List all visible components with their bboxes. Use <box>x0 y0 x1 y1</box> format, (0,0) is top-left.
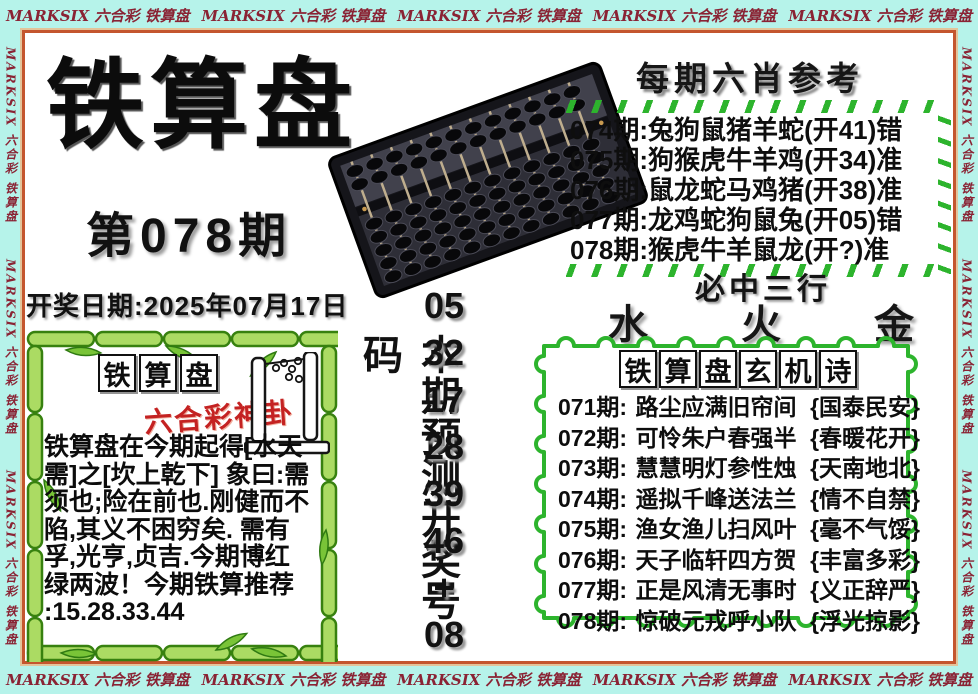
marquee-text: MARKSIX 六合彩 铁算盘 <box>202 5 386 26</box>
poem-row: 074期:遥拟千峰送法兰{情不自禁} <box>558 484 920 515</box>
marquee-strip-right: MARKSIX 六合彩 铁算盘 MARKSIX 六合彩 铁算盘 MARKSIX … <box>956 30 978 664</box>
title-char: 玄 <box>739 350 777 388</box>
row-result: (开41)错 <box>804 115 902 145</box>
poem-row: 077期:正是风清无事时{义正辞严} <box>558 575 920 606</box>
marquee-text: MARKSIX 六合彩 铁算盘 <box>959 470 976 647</box>
poem-issue: 071期: <box>558 392 622 423</box>
divination-line: :15.28.33.44 <box>44 599 324 627</box>
marquee-text: MARKSIX 六合彩 铁算盘 <box>3 47 20 224</box>
marquee-text: MARKSIX 六合彩 铁算盘 <box>6 669 190 690</box>
poem-row: 075期:渔女渔儿扫风叶{毫不气馁} <box>558 514 920 545</box>
marquee-text: MARKSIX 六合彩 铁算盘 <box>788 669 972 690</box>
row-result: (开?)准 <box>804 235 889 265</box>
prediction-numbers: 05 32 17 28 39 46 + 08 <box>406 282 482 658</box>
poem-row: 076期:天子临轩四方贺{丰富多彩} <box>558 545 920 576</box>
poem-issue: 078期: <box>558 606 622 637</box>
prediction-special-number: 08 <box>406 611 482 658</box>
poem-hint: {春暖花开} <box>810 423 920 454</box>
six-xiao-box: 074期:兔狗鼠猪羊蛇(开41)错 075期:狗猴虎牛羊鸡(开34)准 076期… <box>566 100 956 278</box>
row-animals: 龙鸡蛇狗鼠兔 <box>648 205 804 235</box>
poem-hint: {义正辞严} <box>810 575 920 606</box>
prediction-number: 28 <box>406 423 482 470</box>
poem-hint: {毫不气馁} <box>810 514 920 545</box>
poem-verse: 可怜朱户春强半 <box>636 423 797 454</box>
poem-issue: 074期: <box>558 484 622 515</box>
marquee-text: MARKSIX 六合彩 铁算盘 <box>959 259 976 436</box>
marquee-text: MARKSIX 六合彩 铁算盘 <box>593 669 777 690</box>
poem-row: 078期:惊破元戎呼小队{浮光掠影} <box>558 606 920 637</box>
poem-verse: 慧慧明灯参性烛 <box>636 453 797 484</box>
title-char: 盘 <box>180 354 218 392</box>
marquee-text: MARKSIX 六合彩 铁算盘 <box>202 669 386 690</box>
poem-issue: 075期: <box>558 514 622 545</box>
marquee-strip-left: MARKSIX 六合彩 铁算盘 MARKSIX 六合彩 铁算盘 MARKSIX … <box>0 30 22 664</box>
issue-number: 第078期 <box>86 196 292 266</box>
row-animals: 兔狗鼠猪羊蛇 <box>648 115 804 145</box>
row-result: (开05)错 <box>804 205 902 235</box>
bamboo-box: 铁 算 盘 六合彩神卦 铁算盘在今期起得[水天 需]之[坎上乾下] 象曰:需 须… <box>26 330 338 662</box>
marquee-text: MARKSIX 六合彩 铁算盘 <box>3 259 20 436</box>
divination-text: 铁算盘在今期起得[水天 需]之[坎上乾下] 象曰:需 须也;险在前也.刚健而不 … <box>44 434 324 627</box>
row-issue: 076期: <box>570 175 648 205</box>
bamboo-box-title: 铁 算 盘 <box>98 354 218 392</box>
marquee-text: MARKSIX 六合彩 铁算盘 <box>593 5 777 26</box>
six-xiao-row: 077期:龙鸡蛇狗鼠兔(开05)错 <box>570 205 938 235</box>
marquee-text: MARKSIX 六合彩 铁算盘 <box>959 47 976 224</box>
six-xiao-row: 078期:猴虎牛羊鼠龙(开?)准 <box>570 235 938 265</box>
poem-verse: 正是风清无事时 <box>636 575 797 606</box>
divination-line: 须也;险在前也.刚健而不 <box>44 489 324 517</box>
title-char: 算 <box>139 354 177 392</box>
poem-issue: 076期: <box>558 545 622 576</box>
poem-row: 073期:慧慧明灯参性烛{天南地北} <box>558 453 920 484</box>
title-char: 算 <box>659 350 697 388</box>
prediction-number: 46 <box>406 517 482 564</box>
poem-verse: 遥拟千峰送法兰 <box>636 484 797 515</box>
poem-hint: {情不自禁} <box>810 484 920 515</box>
prediction-number: 05 <box>406 282 482 329</box>
title-char: 盘 <box>699 350 737 388</box>
marquee-text: MARKSIX 六合彩 铁算盘 <box>397 5 581 26</box>
poem-issue: 077期: <box>558 575 622 606</box>
poem-row: 072期:可怜朱户春强半{春暖花开} <box>558 423 920 454</box>
six-xiao-row: 074期:兔狗鼠猪羊蛇(开41)错 <box>570 115 938 145</box>
prediction-number: 39 <box>406 470 482 517</box>
six-xiao-title: 每期六肖参考 <box>578 52 922 100</box>
row-result: (开34)准 <box>804 145 902 175</box>
mystery-poem-title: 铁 算 盘 玄 机 诗 <box>532 350 944 388</box>
poem-verse: 渔女渔儿扫风叶 <box>636 514 797 545</box>
draw-date: 开奖日期:2025年07月17日 <box>26 286 348 323</box>
prediction-number: 17 <box>406 376 482 423</box>
poem-verse: 惊破元戎呼小队 <box>636 606 797 637</box>
slash-border-right <box>938 104 951 274</box>
poem-hint: {丰富多彩} <box>810 545 920 576</box>
row-issue: 075期: <box>570 145 648 175</box>
row-animals: 狗猴虎牛羊鸡 <box>648 145 804 175</box>
marquee-strip-top: MARKSIX 六合彩 铁算盘 MARKSIX 六合彩 铁算盘 MARKSIX … <box>0 0 978 30</box>
row-issue: 074期: <box>570 115 648 145</box>
six-xiao-rows: 074期:兔狗鼠猪羊蛇(开41)错 075期:狗猴虎牛羊鸡(开34)准 076期… <box>570 115 938 265</box>
poem-issue: 073期: <box>558 453 622 484</box>
marquee-text: MARKSIX 六合彩 铁算盘 <box>3 470 20 647</box>
divination-line: 陷,其义不困穷矣. 需有 <box>44 517 324 545</box>
row-issue: 077期: <box>570 205 648 235</box>
mystery-poem-rows: 071期:路尘应满旧帘间{国泰民安} 072期:可怜朱户春强半{春暖花开} 07… <box>558 392 920 636</box>
row-animals: 鼠龙蛇马鸡猪 <box>648 175 804 205</box>
title-char: 铁 <box>619 350 657 388</box>
marquee-text: MARKSIX 六合彩 铁算盘 <box>397 669 581 690</box>
title-char: 诗 <box>819 350 857 388</box>
title-char: 机 <box>779 350 817 388</box>
divination-line: 绿两波！今期铁算推荐 <box>44 572 324 600</box>
marquee-text: MARKSIX 六合彩 铁算盘 <box>6 5 190 26</box>
slash-border-top <box>566 100 948 113</box>
divination-line: 孚,光亨,贞吉.今期博红 <box>44 544 324 572</box>
title-char: 铁 <box>98 354 136 392</box>
row-animals: 猴虎牛羊鼠龙 <box>648 235 804 265</box>
six-xiao-row: 076期:鼠龙蛇马鸡猪(开38)准 <box>570 175 938 205</box>
poem-hint: {浮光掠影} <box>810 606 920 637</box>
six-xiao-row: 075期:狗猴虎牛羊鸡(开34)准 <box>570 145 938 175</box>
row-issue: 078期: <box>570 235 648 265</box>
divination-line: 需]之[坎上乾下] 象曰:需 <box>44 462 324 490</box>
poem-verse: 路尘应满旧帘间 <box>636 392 797 423</box>
marquee-text: MARKSIX 六合彩 铁算盘 <box>788 5 972 26</box>
poem-verse: 天子临轩四方贺 <box>636 545 797 576</box>
poem-hint: {国泰民安} <box>810 392 920 423</box>
poem-hint: {天南地北} <box>810 453 920 484</box>
mystery-poem-box: 铁 算 盘 玄 机 诗 071期:路尘应满旧帘间{国泰民安} 072期:可怜朱户… <box>532 334 944 654</box>
poem-issue: 072期: <box>558 423 622 454</box>
prediction-number: 32 <box>406 329 482 376</box>
poem-row: 071期:路尘应满旧帘间{国泰民安} <box>558 392 920 423</box>
page-title: 铁算盘 <box>46 52 358 160</box>
prediction-plus-sign: + <box>406 564 482 611</box>
row-result: (开38)准 <box>804 175 902 205</box>
divination-line: 铁算盘在今期起得[水天 <box>44 434 324 462</box>
marquee-strip-bottom: MARKSIX 六合彩 铁算盘 MARKSIX 六合彩 铁算盘 MARKSIX … <box>0 664 978 694</box>
